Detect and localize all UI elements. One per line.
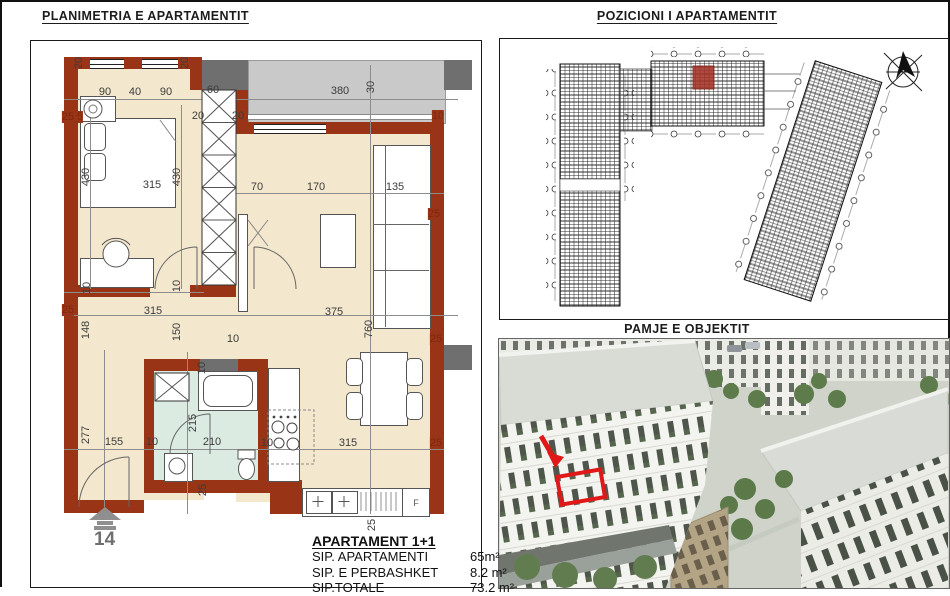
dining-table: [360, 352, 408, 426]
chair: [346, 392, 363, 420]
unit-number: 14: [94, 529, 115, 551]
compass-icon: [884, 51, 922, 91]
neighbour-block: [444, 345, 472, 370]
info-row: SIP. E PERBASHKET8.2 m²: [312, 565, 514, 581]
wall: [64, 57, 202, 69]
sink-basin: [306, 491, 332, 514]
info-label: SIP. APARTAMENTI: [312, 549, 470, 565]
building-render: [499, 339, 949, 589]
neighbour-block: [444, 60, 472, 90]
wall: [144, 371, 154, 480]
fridge-label: F: [413, 498, 419, 508]
info-value: 65m²: [470, 549, 500, 564]
wall: [238, 359, 258, 371]
wall: [144, 480, 270, 493]
site-plan-panel: [499, 38, 949, 320]
sink-basin: [332, 491, 358, 514]
drawing-sheet: PLANIMETRIA E APARTAMENTIT POZICIONI I A…: [0, 0, 950, 587]
view-title: PAMJE E OBJEKTIT: [522, 322, 852, 336]
info-value: 73.2 m²: [470, 580, 514, 595]
info-label: SIP.TOTALE: [312, 580, 470, 596]
site-plan-drawing: [500, 39, 948, 319]
wall: [270, 480, 302, 514]
balcony-railing: [248, 114, 444, 120]
neighbour-block: [202, 60, 248, 90]
coffee-table: [320, 214, 356, 268]
wall: [64, 57, 78, 513]
chair: [346, 358, 363, 386]
apartment-highlight: [693, 66, 714, 89]
entrance-arrow-icon: [89, 507, 121, 531]
chair: [406, 358, 423, 386]
bathtub-inner: [203, 375, 253, 407]
window: [254, 124, 326, 134]
desk: [80, 258, 154, 288]
building-render-panel: [498, 338, 950, 589]
wall: [190, 57, 202, 90]
wall: [430, 134, 444, 514]
info-row: SIP.TOTALE73.2 m²: [312, 580, 514, 596]
info-value: 8.2 m²: [470, 565, 507, 580]
wall: [258, 359, 268, 480]
fridge: F: [402, 488, 430, 517]
info-row: SIP. APARTAMENTI65m²: [312, 549, 514, 565]
apartment-type: APARTAMENT 1+1: [312, 533, 514, 549]
chair: [406, 392, 423, 420]
pillow: [84, 153, 106, 181]
tv-unit: [238, 214, 248, 312]
position-title: POZICIONI I APARTAMENTIT: [522, 9, 852, 23]
building-block-left: [546, 64, 652, 306]
window: [142, 59, 178, 69]
window: [90, 59, 124, 69]
washbasin: [164, 453, 193, 482]
wall: [144, 359, 200, 371]
apartment-info: APARTAMENT 1+1 SIP. APARTAMENTI65m² SIP.…: [312, 533, 514, 596]
sofa: [373, 145, 431, 329]
plan-title: PLANIMETRIA E APARTAMENTIT: [42, 9, 249, 23]
pillow: [84, 123, 106, 151]
kitchen-counter: [268, 368, 300, 482]
building-block-top: [651, 47, 800, 140]
wall: [190, 285, 236, 297]
info-label: SIP. E PERBASHKET: [312, 565, 470, 581]
